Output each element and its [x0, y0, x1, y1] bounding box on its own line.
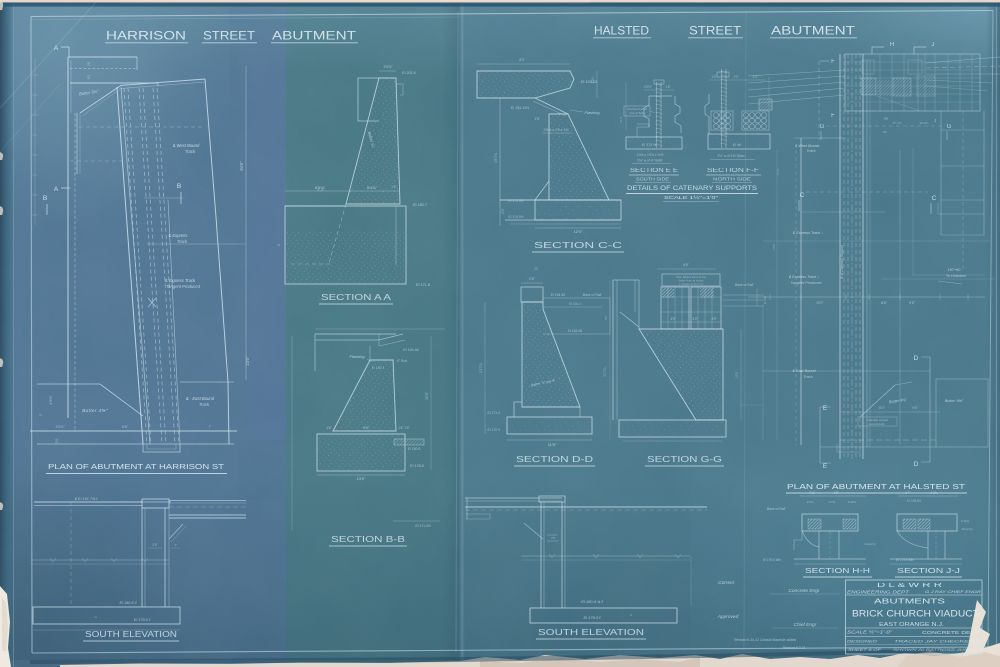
svg-text:Butter 4⅝": Butter 4⅝": [82, 408, 108, 413]
svg-text:℄ Express Track: ℄ Express Track: [165, 278, 196, 283]
svg-text:℄ - East Bound: ℄ - East Bound: [186, 396, 215, 401]
svg-text:E: E: [823, 405, 828, 412]
svg-text:2'0: 2'0: [534, 267, 538, 271]
svg-text:G J RAY CHIEF ENGR: G J RAY CHIEF ENGR: [925, 590, 981, 594]
svg-text:4'9": 4'9": [711, 317, 716, 321]
svg-text:6'6": 6'6": [122, 425, 129, 429]
svg-text:4": 4": [175, 543, 178, 547]
svg-text:1'3¾: 1'3¾: [931, 491, 938, 495]
svg-text:TRACED JAY CHECKED ¹⁄₂: TRACED JAY CHECKED ¹⁄₂: [894, 639, 983, 644]
svg-text:Tangent Produced: Tangent Produced: [166, 284, 201, 289]
svg-text:11'6": 11'6": [548, 442, 557, 447]
svg-text:C: C: [800, 192, 805, 199]
svg-text:SOUTH ELEVATION: SOUTH ELEVATION: [85, 630, 177, 639]
svg-text:Concrete Poured: Concrete Poured: [627, 107, 648, 111]
svg-text:J: J: [934, 118, 936, 123]
svg-text:℄ of Catenary Support: ℄ of Catenary Support: [840, 244, 844, 279]
svg-text:G: G: [820, 124, 825, 130]
svg-text:DETAILS OF CATENARY SUPPORTS: DETAILS OF CATENARY SUPPORTS: [627, 185, 758, 192]
svg-text:2'6": 2'6": [529, 277, 536, 281]
svg-text:PLAN OF ABUTMENT AT HARRISON S: PLAN OF ABUTMENT AT HARRISON ST: [48, 464, 225, 471]
svg-text:Approved: Approved: [717, 614, 739, 620]
svg-text:H: H: [884, 116, 887, 121]
svg-text:2'0¾: 2'0¾: [591, 76, 595, 83]
svg-text:9'0": 9'0": [363, 426, 370, 430]
svg-text:F: F: [831, 59, 835, 65]
svg-text:STREET: STREET: [203, 29, 256, 43]
svg-text:47'-7⅞: 47'-7⅞: [892, 121, 902, 125]
svg-text:4'9": 4'9": [670, 317, 675, 321]
svg-text:Track: Track: [185, 149, 196, 154]
svg-text:El 179.0 ℓ: El 179.0 ℓ: [134, 618, 151, 622]
svg-text:H: H: [890, 42, 894, 48]
svg-text:El 179.0 Min: El 179.0 Min: [896, 558, 914, 562]
svg-text:Flashing: Flashing: [584, 110, 600, 115]
svg-text:2'0⅜: 2'0⅜: [807, 500, 814, 504]
svg-text:2'6: 2'6: [55, 439, 59, 444]
svg-text:ABUTMENT: ABUTMENT: [771, 24, 856, 38]
svg-text:PLAN OF ABUTMENT AT HALSTE: PLAN OF ABUTMENT AT HALSTED ST: [787, 484, 966, 491]
svg-text:El 179.0 Min: El 179.0 Min: [763, 558, 781, 562]
svg-text:El 178.8: El 178.8: [410, 464, 423, 468]
svg-text:El 190.5' ℓ: El 190.5' ℓ: [120, 601, 138, 605]
svg-text:El 184.98: El 184.98: [568, 329, 582, 333]
svg-text:Track: Track: [803, 375, 813, 379]
svg-text:3'1½: 3'1½: [619, 116, 623, 123]
svg-text:HALSTED: HALSTED: [594, 24, 649, 38]
svg-text:Tangent Produced: Tangent Produced: [791, 281, 823, 285]
svg-text:STREET: STREET: [689, 24, 742, 38]
svg-text:16'6": 16'6": [425, 391, 429, 400]
svg-text:Base of Rail: Base of Rail: [583, 293, 602, 297]
svg-text:SECTION B-B: SECTION B-B: [331, 535, 405, 544]
svg-text:21'7⅞: 21'7⅞: [479, 363, 483, 373]
svg-text:B: B: [177, 183, 181, 190]
svg-text:℄ Express Track ↓: ℄ Express Track ↓: [789, 275, 820, 279]
svg-text:SECTION G-G: SECTION G-G: [647, 455, 722, 464]
svg-text:El 201.6: El 201.6: [402, 71, 415, 75]
svg-text:2'6: 2'6: [87, 62, 91, 66]
svg-text:SECTION H-H: SECTION H-H: [805, 568, 870, 575]
svg-text:Note: Batters same as the: Note: Batters same as the: [676, 275, 707, 279]
svg-text:2⅛" ⌀ of 1⅜" Bolts: 2⅛" ⌀ of 1⅜" Bolts: [717, 154, 745, 158]
svg-text:Concrete Engr: Concrete Engr: [789, 588, 820, 594]
svg-text:B: B: [43, 195, 47, 202]
svg-text:E: E: [823, 463, 828, 470]
svg-text:3'3": 3'3": [692, 317, 697, 321]
svg-text:3'8": 3'8": [534, 117, 540, 121]
svg-text:8'6": 8'6": [881, 301, 888, 305]
svg-text:44'-2¾: 44'-2¾: [919, 121, 929, 125]
svg-text:1'7": 1'7": [905, 491, 910, 495]
svg-text:in Section H-H or J-J: in Section H-H or J-J: [679, 282, 704, 286]
svg-text:SHOWN ALBATROSS JUNE 1½: SHOWN ALBATROSS JUNE 1½: [893, 648, 983, 652]
svg-text:El 171.4½: El 171.4½: [508, 199, 523, 203]
svg-text:1'7⅜: 1'7⅜: [829, 500, 836, 504]
svg-text:2'6": 2'6": [152, 543, 157, 547]
svg-text:1'6": 1'6": [326, 426, 332, 430]
svg-text:5'10½: 5'10½: [848, 500, 857, 504]
svg-text:1'6": 1'6": [391, 185, 397, 189]
svg-text:2'6": 2'6": [501, 207, 505, 213]
svg-text:SECTION F-F: SECTION F-F: [707, 168, 759, 174]
svg-text:4'½": 4'½": [809, 491, 815, 495]
svg-text:El 180.4 ¾ ℓ: El 180.4 ¾ ℓ: [581, 599, 603, 604]
svg-text:A: A: [54, 45, 59, 52]
svg-text:5'0: 5'0: [87, 75, 91, 80]
svg-text:Batter lines as shown: Batter lines as shown: [679, 279, 704, 283]
svg-text:Butter '4⅝": Butter '4⅝": [945, 399, 964, 403]
svg-text:El 193.84: El 193.84: [907, 499, 921, 503]
svg-text:ABUTMENT: ABUTMENT: [272, 29, 357, 43]
svg-text:Revised 6-14-32 Conduit Manho: Revised 6-14-32 Conduit Manhole added: [734, 638, 796, 642]
svg-text:D: D: [914, 355, 919, 362]
svg-text:1'0½": 1'0½": [644, 85, 652, 89]
svg-text:BRICK CHURCH VIADUCT: BRICK CHURCH VIADUCT: [852, 609, 980, 619]
svg-text:3': 3': [94, 615, 98, 618]
svg-text:SOUTH SIDE: SOUTH SIDE: [636, 177, 669, 182]
svg-text:SECTION E E: SECTION E E: [630, 168, 678, 174]
svg-text:El 171.4½: El 171.4½: [415, 524, 430, 528]
svg-text:El 190.46: El 190.46: [403, 348, 418, 352]
svg-text:36'0": 36'0": [816, 301, 824, 305]
svg-text:Correct: Correct: [718, 580, 734, 586]
svg-text:ABUTMENTS: ABUTMENTS: [874, 597, 945, 606]
svg-text:8'0": 8'0": [519, 58, 525, 62]
svg-text:13'0": 13'0": [357, 476, 366, 481]
svg-text:7'6⅞: 7'6⅞: [776, 168, 780, 175]
svg-text:9'6": 9'6": [912, 406, 918, 410]
svg-text:5': 5': [39, 413, 43, 416]
svg-text:℄ West Bound: ℄ West Bound: [173, 143, 200, 148]
svg-text:4': 4': [277, 243, 281, 246]
svg-text:Around Bolts: Around Bolts: [629, 111, 645, 115]
svg-text:℄ West Bound: ℄ West Bound: [795, 144, 820, 148]
svg-text:SECTION A A: SECTION A A: [321, 293, 392, 302]
svg-text:EAST ORANGE N.J.: EAST ORANGE N.J.: [879, 622, 944, 628]
svg-text:El 171.8: El 171.8: [416, 283, 430, 287]
svg-text:Base of Rail: Base of Rail: [735, 283, 754, 287]
svg-text:94': 94': [883, 130, 887, 134]
svg-text:8'5¾": 8'5¾": [315, 185, 326, 190]
svg-text:El 194.65: El 194.65: [551, 293, 565, 297]
svg-text:CONCRETE DEPT: CONCRETE DEPT: [922, 630, 979, 635]
svg-text:El 170.9: El 170.9: [488, 428, 501, 432]
svg-text:J: J: [932, 42, 935, 48]
svg-text:4" Rod: 4" Rod: [397, 359, 407, 363]
svg-text:4'3": 4'3": [833, 491, 838, 495]
svg-text:7': 7': [209, 425, 212, 429]
svg-text:5'6": 5'6": [683, 263, 689, 267]
svg-text:Track: Track: [806, 149, 816, 153]
svg-text:2⅛" ⌀ of ⅜" Bolts: 2⅛" ⌀ of ⅜" Bolts: [637, 159, 663, 163]
svg-text:5'2: 5'2: [604, 316, 608, 320]
svg-text:El 180.7: El 180.7: [413, 203, 427, 207]
svg-text:157+90: 157+90: [948, 268, 962, 272]
svg-text:ENGINEERING DEPT: ENGINEERING DEPT: [847, 590, 910, 595]
svg-text:SECTION D-D: SECTION D-D: [516, 455, 593, 464]
svg-text:84'6": 84'6": [239, 161, 244, 171]
svg-text:Track: Track: [199, 402, 210, 407]
svg-text:Track: Track: [177, 239, 188, 244]
svg-text:15'0: 15'0: [735, 372, 739, 378]
svg-text:C: C: [932, 195, 937, 202]
svg-text:1'6": 1'6": [665, 85, 670, 89]
svg-text:El 179.3 ℓ: El 179.3 ℓ: [583, 615, 601, 620]
svg-text:1'3": 1'3": [711, 75, 716, 79]
svg-text:Base of Rail: Base of Rail: [767, 507, 786, 511]
svg-text:1'0⅜ x 1'0⅜ x ⅜ R: 1'0⅜ x 1'0⅜ x ⅜ R: [636, 153, 664, 157]
svg-text:8'0": 8'0": [879, 406, 885, 410]
svg-text:6'4¾": 6'4¾": [367, 185, 378, 190]
svg-text:A: A: [54, 186, 59, 193]
svg-text:23'0": 23'0": [245, 356, 250, 366]
svg-text:Revised 8-3-31: Revised 8-3-31: [783, 646, 806, 650]
svg-text:SECTION C-C: SECTION C-C: [534, 241, 622, 250]
svg-text:D: D: [914, 461, 919, 468]
svg-text:around bolts: around bolts: [869, 422, 885, 426]
svg-text:SCALE ½"=1'-0": SCALE ½"=1'-0": [847, 630, 893, 635]
svg-text:19'7⅞: 19'7⅞: [494, 152, 498, 163]
svg-text:℄ Express Track ↓: ℄ Express Track ↓: [793, 231, 824, 235]
svg-text:To Hoboken: To Hoboken: [946, 274, 966, 278]
svg-text:El 194.2: El 194.2: [569, 302, 581, 306]
svg-text:DESIGNED: DESIGNED: [847, 639, 877, 644]
svg-text:2'0¾": 2'0¾": [384, 65, 394, 69]
svg-text:3'2¾": 3'2¾": [56, 425, 66, 429]
svg-text:El 171.4: El 171.4: [488, 411, 501, 415]
svg-text:SCALE 1½"=1'0": SCALE 1½"=1'0": [664, 194, 719, 200]
svg-text:El 170.9½: El 170.9½: [508, 215, 523, 219]
svg-text:Flashing: Flashing: [864, 542, 876, 546]
svg-text:Flashing: Flashing: [349, 354, 365, 359]
svg-text:NORTH SIDE: NORTH SIDE: [713, 177, 751, 182]
svg-text:4'0¾": 4'0¾": [49, 395, 53, 405]
svg-text:SHEET 9 OF: SHEET 9 OF: [848, 648, 882, 652]
svg-text:SOUTH ELEVATION: SOUTH ELEVATION: [538, 628, 644, 637]
svg-text:Flooring: Flooring: [962, 527, 973, 531]
svg-text:Chief Engr: Chief Engr: [794, 622, 817, 628]
svg-text:El 180.5: El 180.5: [408, 447, 421, 451]
svg-text:1'6" 1'6": 1'6" 1'6": [398, 426, 409, 430]
svg-text:9'6": 9'6": [909, 301, 916, 305]
svg-text:El ⅜ℓ: El ⅜ℓ: [733, 143, 742, 147]
svg-text:SECTION J-J: SECTION J-J: [897, 568, 960, 575]
svg-text:21'7⅞: 21'7⅞: [603, 367, 607, 376]
svg-text:1'0": 1'0": [733, 75, 738, 79]
svg-text:F: F: [831, 113, 835, 119]
svg-text:HARRISON: HARRISON: [106, 29, 186, 43]
svg-text:G: G: [947, 124, 952, 130]
svg-text:12'0": 12'0": [574, 229, 583, 234]
svg-text:7'6⅞: 7'6⅞: [772, 243, 776, 250]
svg-text:D L & W R R: D L & W R R: [877, 583, 943, 589]
svg-text:℄ El 191.7⅞ ℓ: ℄ El 191.7⅞ ℓ: [75, 497, 99, 501]
svg-text:1'10⅞: 1'10⅞: [961, 519, 970, 523]
svg-text:El 174 ⅜: El 174 ⅜: [642, 143, 656, 147]
svg-text:2'6: 2'6: [551, 536, 555, 540]
svg-text:El 194.14½: El 194.14½: [511, 106, 529, 110]
svg-text:℄ Express: ℄ Express: [169, 233, 189, 238]
